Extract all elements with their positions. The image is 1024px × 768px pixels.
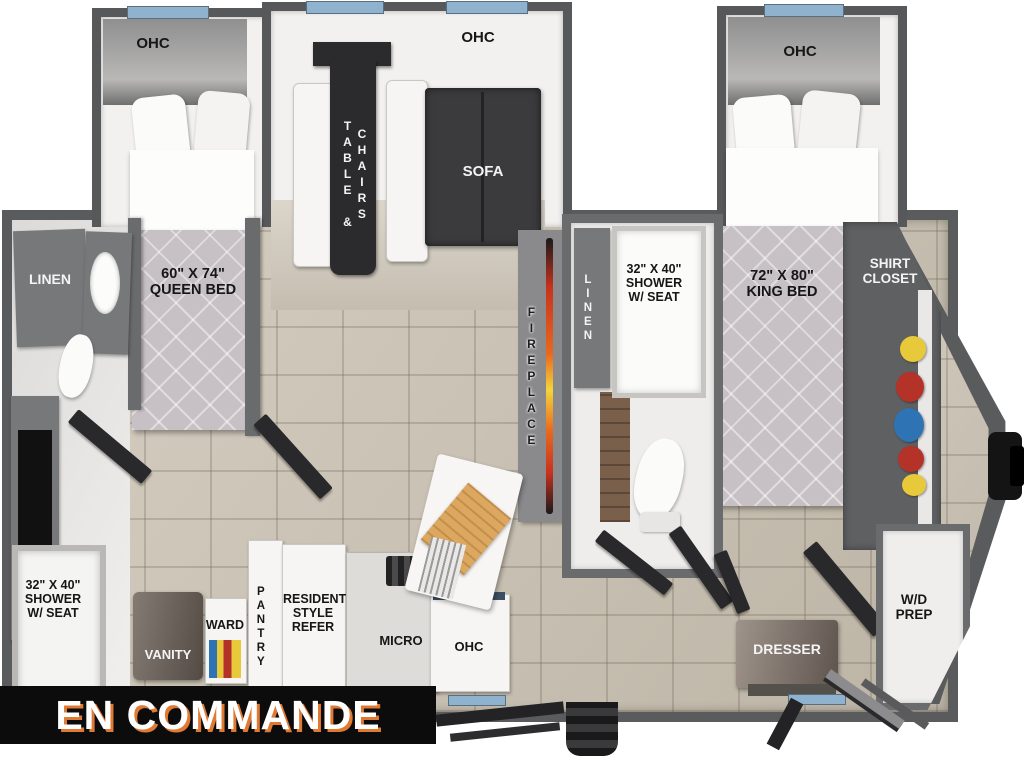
fireplace-label: FIREPLACE: [524, 266, 537, 488]
queen-ohc-label: OHC: [118, 36, 188, 53]
queen-bed-label: 60" X 74" QUEEN BED: [131, 266, 255, 298]
hitch-coupler: [1010, 446, 1024, 486]
closet-clothes-blue: [894, 408, 924, 442]
dinette-ohc-label: OHC: [443, 30, 513, 47]
mid-shower: [612, 226, 706, 398]
table-chairs-label-col2: CHAIRS: [355, 105, 368, 245]
dinette-window-left: [306, 1, 384, 14]
king-ohc-cabinet: [728, 17, 880, 105]
queen-mattress: [132, 230, 254, 430]
entry-steps: [566, 702, 618, 756]
vanity-label: VANITY: [133, 648, 203, 663]
closet-clothes-yellow-1: [900, 336, 926, 362]
status-banner: EN COMMANDE: [0, 686, 436, 744]
closet-clothes-yellow-2: [902, 474, 926, 496]
queen-slide-window: [127, 6, 209, 19]
dinette-bench-right: [386, 80, 428, 262]
shirt-closet-label: SHIRT CLOSET: [850, 256, 930, 286]
dinette-table-label: TABLE & CHAIRS: [332, 105, 376, 245]
closet-clothes-red-2: [898, 446, 924, 472]
table-chairs-label-col1: TABLE &: [340, 105, 353, 245]
dinette-bench-left: [293, 83, 335, 267]
rear-shower-label: 32" X 40" SHOWER W/ SEAT: [14, 578, 92, 620]
vanity: [133, 592, 203, 680]
refrigerator-label: RESIDENTIAL STYLE REFER: [283, 592, 343, 634]
status-banner-text: EN COMMANDE: [55, 692, 380, 739]
wardrobe-clothes: [209, 640, 241, 678]
kitchen-ohc-label: OHC: [440, 640, 498, 655]
mid-shower-label: 32" X 40" SHOWER W/ SEAT: [610, 262, 698, 304]
rear-linen-label: LINEN: [18, 272, 82, 288]
king-ohc-label: OHC: [765, 44, 835, 61]
sofa-label: SOFA: [438, 164, 528, 181]
mid-bath-wood-floor: [600, 392, 630, 522]
micro-label: MICRO: [372, 634, 430, 649]
queen-bed-sheet: [130, 150, 254, 236]
rv-floorplan: TABLE & CHAIRS FIREPLACE LINEN 32" X 40"…: [0, 0, 1024, 768]
underbody-rail-left-2: [450, 722, 560, 741]
rear-linen-closet: [13, 229, 89, 347]
wd-prep-label: W/D PREP: [884, 592, 944, 622]
mid-linen-label: LINEN: [581, 246, 594, 372]
fireplace-flame-strip: [546, 238, 553, 514]
entry-door-window: [448, 695, 506, 706]
pantry-label: PANTRY: [254, 572, 267, 684]
wardrobe-label: WARD: [203, 618, 247, 632]
dresser-label: DRESSER: [736, 642, 838, 658]
king-bed-label: 72" X 80" KING BED: [706, 268, 858, 300]
king-slide-window: [764, 4, 844, 17]
rear-shower: [12, 545, 106, 703]
rear-sink-bowl: [90, 252, 120, 314]
dinette-window-right: [446, 1, 528, 14]
closet-clothes-red-1: [896, 372, 924, 402]
wall-bedroom-living: [245, 218, 260, 436]
